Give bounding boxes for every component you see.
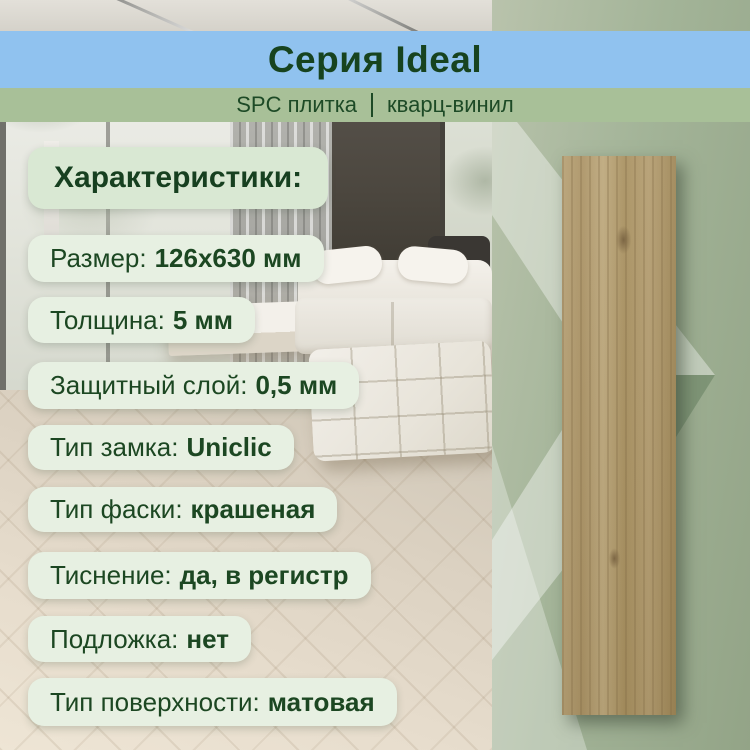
spec-value: нет bbox=[186, 624, 229, 655]
spec-label: Подложка: bbox=[50, 624, 178, 655]
spec-row-bevel-type: Тип фаски: крашеная bbox=[28, 487, 337, 532]
series-title-banner: Серия Ideal bbox=[0, 31, 750, 88]
spec-label: Тиснение: bbox=[50, 560, 172, 591]
subtitle-divider bbox=[371, 93, 373, 117]
product-type-left: SPC плитка bbox=[236, 92, 357, 118]
spec-value: крашеная bbox=[191, 494, 316, 525]
spec-row-wear-layer: Защитный слой: 0,5 мм bbox=[28, 362, 359, 409]
spec-value: 0,5 мм bbox=[255, 370, 337, 401]
series-title: Серия Ideal bbox=[268, 39, 482, 81]
spec-value: матовая bbox=[268, 687, 375, 718]
product-type-banner: SPC плитка кварц-винил bbox=[0, 88, 750, 122]
spec-row-lock-type: Тип замка: Uniclic bbox=[28, 425, 294, 470]
spec-row-thickness: Толщина: 5 мм bbox=[28, 297, 255, 343]
spec-row-size: Размер: 126х630 мм bbox=[28, 235, 324, 282]
specs-heading: Характеристики: bbox=[54, 161, 302, 195]
spec-row-underlay: Подложка: нет bbox=[28, 616, 251, 662]
wood-plank-sample-image bbox=[562, 156, 676, 715]
ceiling-lights bbox=[0, 0, 492, 31]
spec-label: Толщина: bbox=[50, 305, 165, 336]
spec-label: Тип поверхности: bbox=[50, 687, 260, 718]
spec-label: Тип фаски: bbox=[50, 494, 183, 525]
spec-label: Тип замка: bbox=[50, 432, 178, 463]
spec-value: 126х630 мм bbox=[155, 243, 302, 274]
spec-value: Uniclic bbox=[186, 432, 271, 463]
spec-value: 5 мм bbox=[173, 305, 233, 336]
spec-label: Защитный слой: bbox=[50, 370, 247, 401]
spec-value: да, в регистр bbox=[180, 560, 349, 591]
product-card: Серия Ideal SPC плитка кварц-винил Харак… bbox=[0, 0, 750, 750]
product-type-right: кварц-винил bbox=[387, 92, 514, 118]
spec-row-surface-type: Тип поверхности: матовая bbox=[28, 678, 397, 726]
specs-heading-pill: Характеристики: bbox=[28, 147, 328, 209]
spec-row-embossing: Тиснение: да, в регистр bbox=[28, 552, 371, 599]
spec-label: Размер: bbox=[50, 243, 147, 274]
